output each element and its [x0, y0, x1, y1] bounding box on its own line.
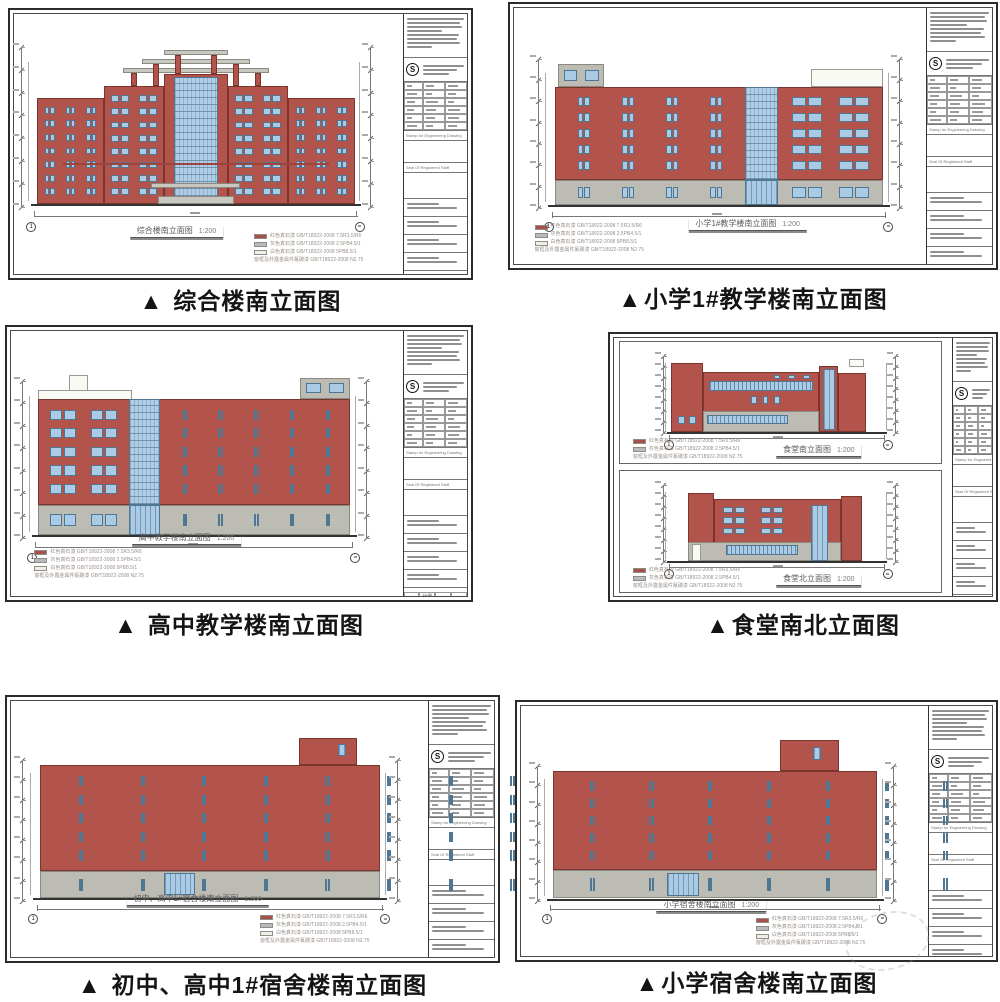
- window: [121, 108, 129, 115]
- text-line: [407, 355, 457, 357]
- window-bay: [235, 790, 297, 809]
- level-label: [891, 119, 897, 121]
- window: [45, 148, 49, 155]
- text-line: [423, 390, 449, 392]
- window: [451, 776, 453, 786]
- level-label: [655, 385, 661, 387]
- level-tick-h: [893, 805, 897, 806]
- text-line: [946, 67, 973, 69]
- legend-row: 窗框及外露金属件氟碳漆 GB/T18922-2008 N2.75: [535, 247, 644, 255]
- window: [301, 107, 305, 114]
- legend-swatch-red: [34, 550, 47, 555]
- legend-row: 白色真石漆 GB/T18922-2008 5PB8.5/1: [254, 248, 363, 256]
- text-line: [407, 261, 457, 263]
- building-block-post: [153, 64, 159, 87]
- building-block-glass: [811, 505, 828, 561]
- text-line: [432, 729, 487, 731]
- text-line: [956, 563, 975, 565]
- level-label: [362, 203, 368, 205]
- triangle-icon: ▲: [618, 286, 642, 313]
- window-bay: [43, 461, 83, 480]
- project-info-row: [929, 909, 992, 927]
- level-tick-h: [22, 860, 26, 861]
- window-bay: [650, 141, 694, 157]
- window-bay: [258, 118, 286, 131]
- window-bay: [258, 158, 286, 171]
- dimension-aux-line: [355, 396, 356, 533]
- window: [91, 428, 103, 438]
- level-label: [358, 512, 364, 514]
- window: [316, 188, 320, 195]
- window: [149, 108, 157, 115]
- window-bay: [81, 185, 102, 199]
- window-bay: [681, 795, 740, 812]
- level-tick-h: [538, 208, 542, 209]
- level-label: [14, 776, 20, 778]
- window: [828, 781, 830, 791]
- window-row: [230, 118, 286, 131]
- window-bay: [740, 777, 799, 794]
- building-block-glass: [745, 180, 778, 205]
- building-block-post: [131, 73, 137, 87]
- window-bay: [420, 790, 482, 809]
- signature-cell: [969, 116, 992, 124]
- project-info-row: [429, 922, 494, 940]
- axis-bubble-right: [380, 914, 390, 924]
- building-block-white: [849, 359, 864, 368]
- window-bay: [916, 812, 975, 829]
- window-bay: [650, 125, 694, 141]
- window-bay: [694, 93, 738, 109]
- window: [828, 799, 830, 809]
- axis-bubble-label: [887, 225, 890, 227]
- axis-bubble-right: [350, 553, 360, 563]
- level-tick-h: [22, 426, 26, 427]
- signature-cell: [978, 406, 992, 414]
- text-line: [932, 726, 984, 728]
- window-bay: [606, 93, 650, 109]
- window: [91, 484, 103, 494]
- level-tick-h: [538, 165, 542, 166]
- dimension-tick: [879, 905, 880, 911]
- text-line: [407, 239, 439, 241]
- elevation-dimension-stack: [657, 356, 669, 433]
- level-tick-h: [895, 562, 899, 563]
- window: [769, 781, 771, 791]
- caption-primary-dormitory: ▲小学宿舍楼南立面图: [515, 964, 998, 998]
- level-label: [14, 856, 20, 858]
- window: [584, 129, 590, 138]
- window: [773, 517, 783, 523]
- text-line: [407, 335, 464, 337]
- window: [652, 781, 654, 791]
- building-elevation: 1: [555, 64, 883, 205]
- legend-swatch-gray: [34, 558, 47, 563]
- window-bay: [258, 145, 286, 158]
- window: [81, 879, 83, 891]
- window: [66, 175, 70, 182]
- building-elevation: 1: [37, 53, 354, 204]
- window: [593, 878, 595, 891]
- window: [105, 447, 117, 457]
- window-bay: [563, 847, 622, 864]
- level-tick-h: [537, 901, 541, 902]
- building-block-none: [558, 90, 742, 177]
- elevation-dimension-stack: [391, 760, 403, 901]
- axis-bubble-left: 1: [26, 222, 36, 232]
- level-label: [655, 547, 661, 549]
- building-block-none: [720, 504, 748, 538]
- material-legend: 红色真石漆 GB/T18922-2008 7.5R3.5/R6灰色真石漆 GB/…: [34, 548, 143, 580]
- window-row: [562, 141, 738, 157]
- text-line: [407, 556, 439, 558]
- window: [584, 187, 590, 198]
- text-line: [956, 567, 986, 569]
- window-bay: [50, 809, 112, 828]
- window: [451, 879, 453, 891]
- window: [629, 129, 635, 138]
- window-bay: [606, 109, 650, 125]
- window: [593, 799, 595, 809]
- window: [946, 799, 948, 809]
- level-tick-h: [895, 367, 899, 368]
- window: [263, 175, 271, 182]
- text-line: [932, 718, 987, 720]
- legend-text: 红色真石漆 GB/T18922-2008 7.5R3.5/R6: [270, 233, 361, 241]
- window: [143, 850, 145, 860]
- building-block-none: [163, 507, 347, 534]
- company-name: [945, 57, 990, 71]
- window: [761, 517, 771, 523]
- text-line: [432, 908, 466, 910]
- level-label: [885, 801, 891, 803]
- legend-row: 白色真石漆 GB/T18922-2008 5PB8.5/1: [34, 564, 143, 572]
- window-row: [290, 171, 352, 185]
- window-bay: [760, 396, 772, 405]
- level-label: [14, 816, 20, 818]
- building-block-red: [838, 373, 866, 431]
- window: [92, 188, 96, 195]
- window: [322, 107, 326, 114]
- text-line: [956, 358, 987, 360]
- level-tick-h: [370, 161, 374, 162]
- window-bay: [562, 157, 606, 173]
- window: [296, 120, 300, 127]
- text-line: [932, 730, 982, 732]
- level-label: [358, 534, 364, 536]
- level-label: [887, 536, 893, 538]
- building-block-ribbon: [709, 381, 813, 391]
- window: [593, 851, 595, 861]
- window: [652, 799, 654, 809]
- project-info-row: [404, 552, 467, 570]
- legend-text: 窗框及外露金属件氟碳漆 GB/T18922-2008 N2.75: [633, 454, 742, 462]
- building-block-white: [811, 69, 883, 87]
- window: [828, 816, 830, 826]
- window: [839, 161, 853, 170]
- building-block-post: [255, 73, 261, 87]
- window: [723, 528, 733, 534]
- project-info-row: [404, 217, 467, 235]
- drawing-frame: 1小学1#教学楼南立面图1:200红色真石漆 GB/T18922-2008 7.…: [514, 8, 924, 264]
- signature-cell: [404, 431, 423, 439]
- level-label: [655, 374, 661, 376]
- signature-cell: [969, 92, 992, 100]
- window-bay: [420, 772, 482, 791]
- level-label: [389, 756, 395, 758]
- window: [792, 187, 806, 198]
- company-name: [971, 387, 990, 401]
- text-line: [432, 912, 484, 914]
- notes-block: [429, 701, 494, 745]
- building-block-post: [233, 64, 239, 87]
- building-block-none: [758, 504, 786, 538]
- window-bay: [694, 182, 738, 203]
- window-bay: [60, 103, 81, 117]
- text-line: [407, 339, 460, 341]
- window: [337, 134, 341, 141]
- text-line: [956, 350, 989, 352]
- building-block-glassH: [129, 399, 160, 506]
- level-label: [529, 762, 535, 764]
- level-label: [362, 134, 368, 136]
- level-tick-h: [537, 766, 541, 767]
- window-bay: [84, 480, 124, 499]
- level-label: [530, 76, 536, 78]
- window: [322, 188, 326, 195]
- building-block-red: [299, 738, 357, 765]
- level-label: [14, 422, 20, 424]
- triangle-icon: ▲: [140, 288, 164, 315]
- level-label: [887, 525, 893, 527]
- building-block-glass: [338, 744, 346, 756]
- signature-table: [927, 76, 992, 125]
- window: [66, 148, 70, 155]
- text-line: [932, 722, 967, 724]
- window-bay: [167, 508, 203, 533]
- level-tick-h: [21, 47, 25, 48]
- window: [149, 188, 157, 195]
- level-tick-h: [366, 516, 370, 517]
- triangle-icon: ▲: [636, 970, 660, 997]
- level-tick-h: [895, 507, 899, 508]
- window-bay: [43, 406, 83, 425]
- window: [792, 129, 806, 138]
- elevation-dimension-stack: [887, 766, 899, 901]
- text-line: [407, 343, 462, 345]
- triangle-icon: ▲: [706, 612, 730, 639]
- level-label: [530, 97, 536, 99]
- window-bay: [238, 406, 274, 425]
- dimension-value: [773, 565, 783, 567]
- legend-text: 窗框及外露金属件氟碳漆 GB/T18922-2008 N2.75: [535, 247, 644, 255]
- window-row: [230, 158, 286, 171]
- window-bay: [40, 185, 61, 199]
- dimension-tick: [552, 212, 553, 218]
- window-bay: [358, 772, 420, 791]
- window-row: [290, 131, 352, 145]
- window-bay: [622, 812, 681, 829]
- window-bay: [235, 772, 297, 791]
- building-block-ribbon: [707, 415, 787, 425]
- window: [301, 188, 305, 195]
- signature-cell: [978, 422, 992, 430]
- window: [578, 145, 584, 154]
- building-block-none: [557, 872, 875, 898]
- window: [839, 113, 853, 122]
- window: [710, 97, 716, 106]
- drawing-title: 食堂南立面图1:200: [776, 444, 862, 457]
- seal-caption: Seal Of Registered Staff: [927, 157, 992, 167]
- level-label: [887, 385, 893, 387]
- window: [652, 816, 654, 826]
- window: [71, 134, 75, 141]
- window-bay: [258, 172, 286, 185]
- window-bay: [112, 828, 174, 847]
- window-bay: [740, 812, 799, 829]
- window: [91, 465, 103, 475]
- text-line: [407, 351, 459, 353]
- level-label: [655, 525, 661, 527]
- text-line: [948, 757, 989, 759]
- level-label: [362, 43, 368, 45]
- window-bay: [238, 480, 274, 499]
- caption-text: 小学宿舍楼南立面图: [661, 970, 877, 996]
- level-label: [13, 66, 19, 68]
- company-logo: S: [406, 380, 419, 393]
- window: [839, 145, 853, 154]
- window: [143, 813, 145, 823]
- window-bay: [759, 515, 785, 525]
- window: [66, 107, 70, 114]
- text-line: [956, 342, 990, 344]
- window-bay: [798, 873, 857, 896]
- material-legend: 红色真石漆 GB/T18922-2008 7.5R3.5/R6灰色真石漆 GB/…: [254, 232, 363, 264]
- window: [342, 120, 346, 127]
- window-bay: [721, 505, 747, 515]
- window: [263, 188, 271, 195]
- signature-cell: [423, 407, 445, 415]
- text-line: [972, 397, 983, 399]
- scale-cell: 比例: [419, 592, 435, 596]
- level-tick-h: [366, 403, 370, 404]
- level-tick-h: [397, 780, 401, 781]
- window: [257, 484, 259, 494]
- window-row: [230, 132, 286, 145]
- window-bay: [106, 105, 134, 118]
- window-bay: [650, 157, 694, 173]
- project-info-row: [404, 516, 467, 534]
- window-bay: [40, 131, 61, 145]
- drawing-title-text: 食堂北立面图: [783, 574, 831, 583]
- dimension-aux-line: [882, 779, 883, 896]
- window: [50, 514, 62, 526]
- level-label: [362, 66, 368, 68]
- window: [292, 428, 294, 438]
- text-line: [407, 520, 439, 522]
- drawing-scale: 1:200: [837, 447, 855, 454]
- window-row: [563, 847, 868, 864]
- legend-row: 灰色真石漆 GB/T18922-2008 2.5PB4.5/1: [254, 240, 363, 248]
- window: [111, 122, 119, 129]
- window-bay: [238, 443, 274, 462]
- window: [244, 148, 252, 155]
- legend-row: 红色真石漆 GB/T18922-2008 7.5R3.5/R6: [633, 567, 742, 575]
- level-tick-h: [893, 862, 897, 863]
- window-bay: [681, 847, 740, 864]
- window: [751, 396, 756, 403]
- window: [257, 514, 259, 526]
- notes-block: [927, 8, 992, 52]
- level-tick-h: [21, 161, 25, 162]
- window-bay: [420, 809, 482, 828]
- window-bay: [173, 809, 235, 828]
- window: [584, 145, 590, 154]
- window-bay: [694, 141, 738, 157]
- window: [64, 428, 76, 438]
- window-bay: [311, 117, 332, 131]
- window-row: [50, 828, 370, 847]
- window-bay: [230, 92, 258, 105]
- text-line: [423, 386, 457, 388]
- signature-cell: [969, 100, 992, 108]
- text-line: [423, 65, 464, 67]
- window: [66, 134, 70, 141]
- axis-bubble-right: [883, 569, 893, 579]
- window-bay: [975, 777, 1000, 794]
- signature-cell: [969, 84, 992, 92]
- level-tick-h: [21, 70, 25, 71]
- page: SStamp for Engineering DrawingSeal Of Re…: [0, 0, 1000, 1002]
- window: [578, 129, 584, 138]
- building-block-slab: [164, 50, 227, 55]
- title-block: SStamp for Engineering DrawingSeal Of Re…: [403, 331, 467, 596]
- window-bay: [230, 145, 258, 158]
- window-bay: [230, 158, 258, 171]
- window: [45, 175, 49, 182]
- window: [185, 447, 187, 457]
- legend-swatch-gray: [254, 242, 267, 247]
- window: [584, 113, 590, 122]
- level-label: [14, 756, 20, 758]
- window: [689, 416, 696, 425]
- window-row: [562, 182, 738, 203]
- window-bay: [831, 182, 878, 203]
- window-bay: [106, 185, 134, 198]
- window: [717, 145, 723, 154]
- window-bay: [238, 424, 274, 443]
- window: [50, 107, 54, 114]
- window-bay: [50, 790, 112, 809]
- window-grid: [676, 415, 698, 426]
- text-line: [423, 382, 464, 384]
- window: [50, 161, 54, 168]
- drawing-frame: 1高中教学楼南立面图1:200红色真石漆 GB/T18922-2008 7.5R…: [11, 331, 401, 596]
- building-block-none: [41, 507, 125, 534]
- window-row: [302, 380, 348, 397]
- window-bay: [106, 158, 134, 171]
- window-row: [106, 105, 162, 118]
- window-bay: [783, 141, 830, 157]
- dimension-value: [773, 436, 783, 438]
- window: [91, 514, 103, 526]
- title-block: SStamp for Engineering DrawingSeal Of Re…: [952, 338, 992, 596]
- signature-cell: [445, 90, 467, 98]
- ground-line: [667, 561, 887, 563]
- window-bay: [173, 846, 235, 865]
- window-bay: [325, 380, 348, 397]
- window: [593, 816, 595, 826]
